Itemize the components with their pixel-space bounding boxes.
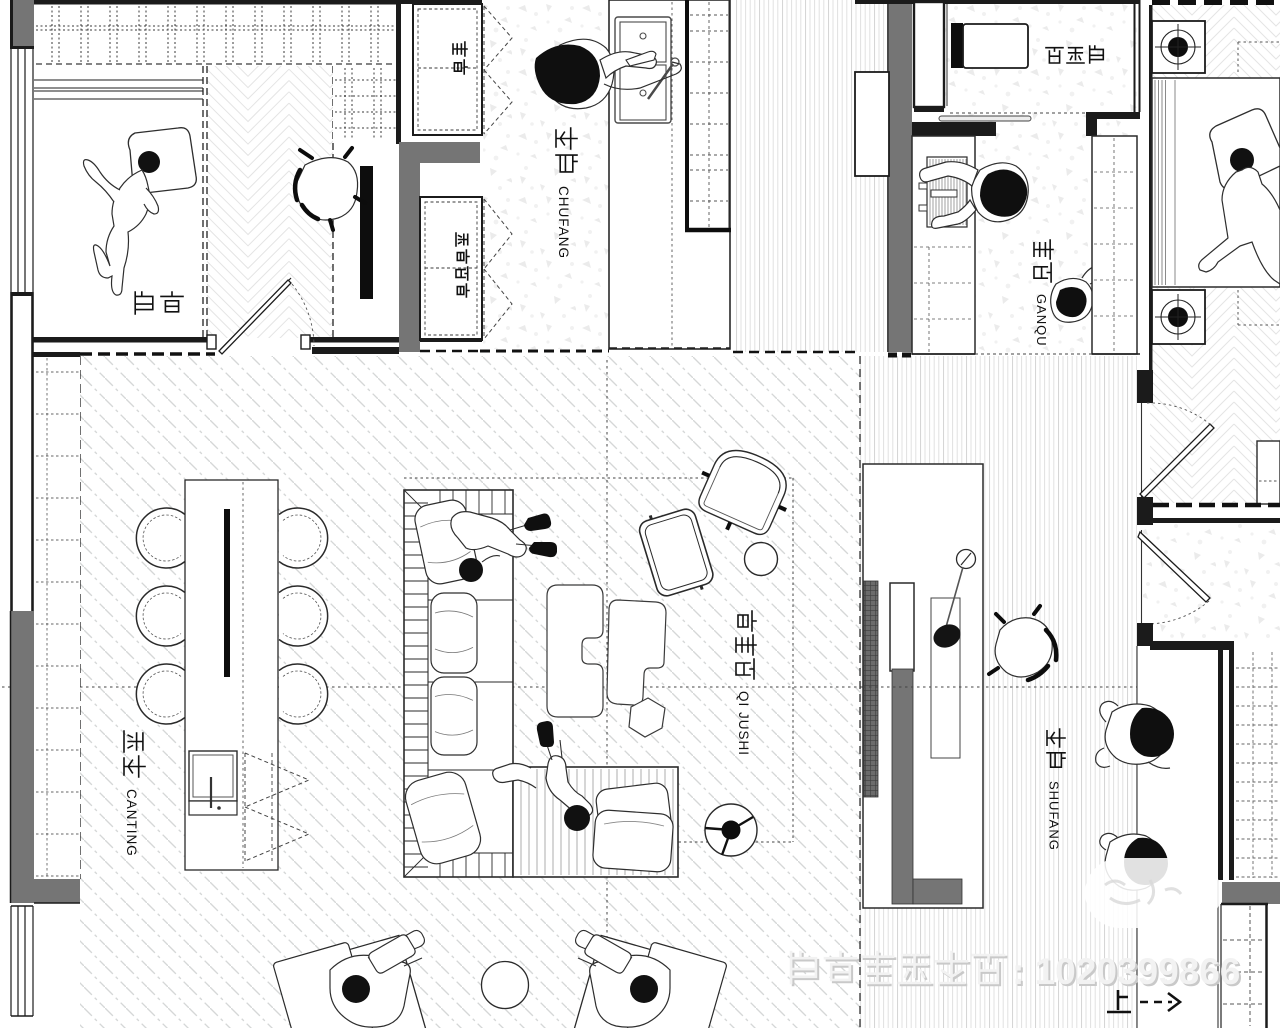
svg-text:GANQU: GANQU (1034, 294, 1049, 347)
svg-text:CHUFANG: CHUFANG (556, 186, 571, 259)
svg-text:QI JUSHI: QI JUSHI (736, 691, 751, 756)
svg-text:CANTING: CANTING (124, 789, 139, 857)
svg-text:SHUFANG: SHUFANG (1047, 781, 1062, 851)
svg-text:: 1020399866: : 1020399866 (1012, 951, 1240, 992)
